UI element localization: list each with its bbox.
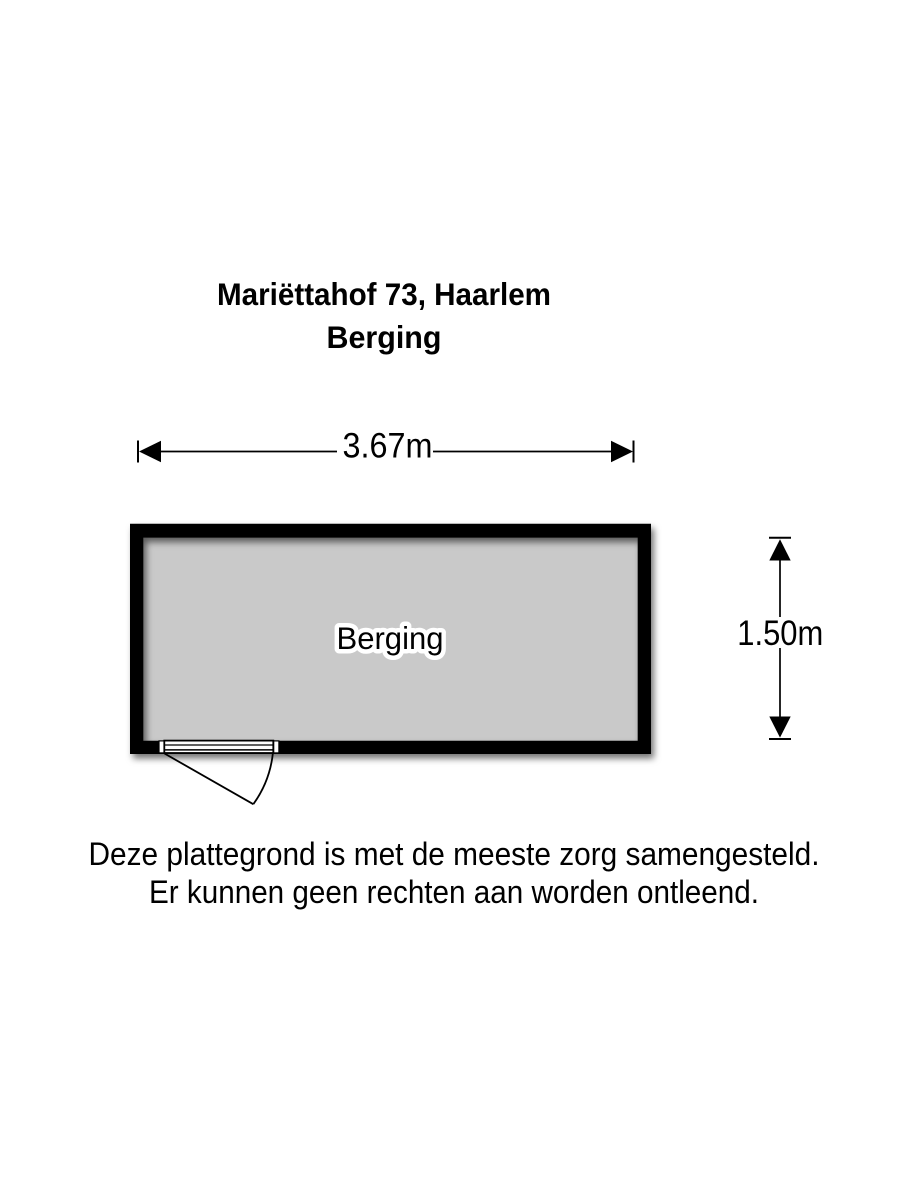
svg-text:Berging: Berging: [327, 319, 442, 355]
svg-text:Deze plattegrond is met de mee: Deze plattegrond is met de meeste zorg s…: [89, 836, 820, 872]
svg-text:Mariëttahof 73, Haarlem: Mariëttahof 73, Haarlem: [217, 276, 551, 312]
svg-text:Berging: Berging: [337, 620, 444, 656]
svg-text:1.50m: 1.50m: [737, 613, 823, 653]
svg-text:3.67m: 3.67m: [343, 426, 433, 466]
svg-text:Er kunnen geen rechten aan wor: Er kunnen geen rechten aan worden ontlee…: [149, 874, 759, 910]
